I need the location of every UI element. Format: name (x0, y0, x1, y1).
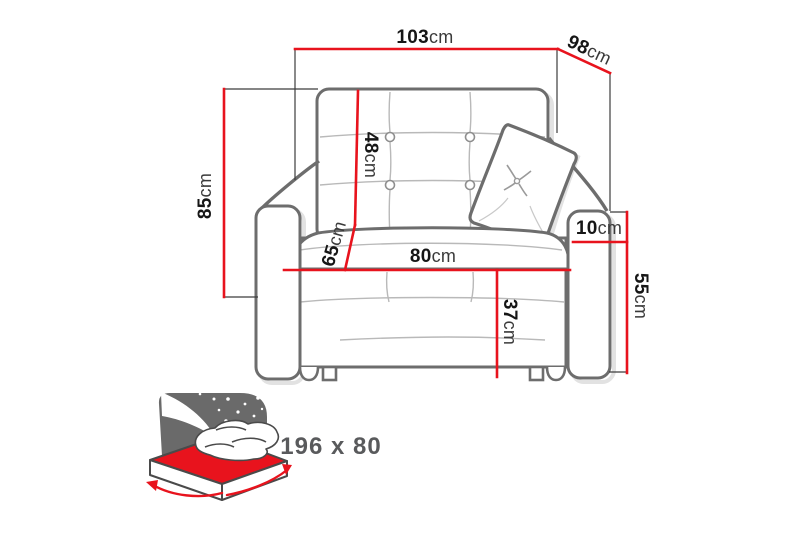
right-square-leg (530, 367, 543, 380)
dim-value: 85 (195, 197, 216, 219)
right-caster-leg (547, 367, 565, 380)
left-square-leg (323, 367, 336, 380)
dim-label-armrest-width: 10cm (576, 218, 622, 240)
dim-value: 103 (396, 27, 429, 48)
dim-label-seat-height: 37cm (498, 299, 520, 345)
sofa-line-art (0, 0, 800, 533)
dim-unit: cm (631, 295, 651, 320)
dim-unit: cm (432, 246, 457, 266)
dim-label-seat-width: 80cm (410, 246, 456, 268)
sofa-dimension-diagram: 103cm 98cm 85cm 48cm 65cm 80cm 10cm 55cm… (0, 0, 800, 533)
sofa-legs (300, 367, 565, 380)
icon-arrow-length-head (146, 480, 158, 491)
dim-value: 48 (360, 132, 381, 154)
dim-unit: cm (195, 173, 215, 198)
dim-unit: cm (429, 27, 454, 47)
sofa-bed-icon (146, 393, 292, 500)
dim-label-backrest-height: 48cm (359, 132, 381, 178)
pillow-button (514, 178, 519, 183)
dim-label-total-height: 85cm (195, 173, 217, 219)
dim-label-total-width: 103cm (396, 27, 453, 49)
dim-unit: cm (361, 154, 381, 179)
dim-label-armrest-height: 55cm (629, 273, 651, 319)
dim-value: 80 (410, 246, 432, 267)
left-caster-leg (300, 367, 318, 380)
dim-unit: cm (598, 218, 623, 238)
dim-unit: cm (500, 321, 520, 346)
dim-value: 10 (576, 218, 598, 239)
dim-value: 37 (499, 299, 520, 321)
dim-value: 55 (630, 273, 651, 295)
bed-size-label: 196 x 80 (280, 433, 381, 461)
